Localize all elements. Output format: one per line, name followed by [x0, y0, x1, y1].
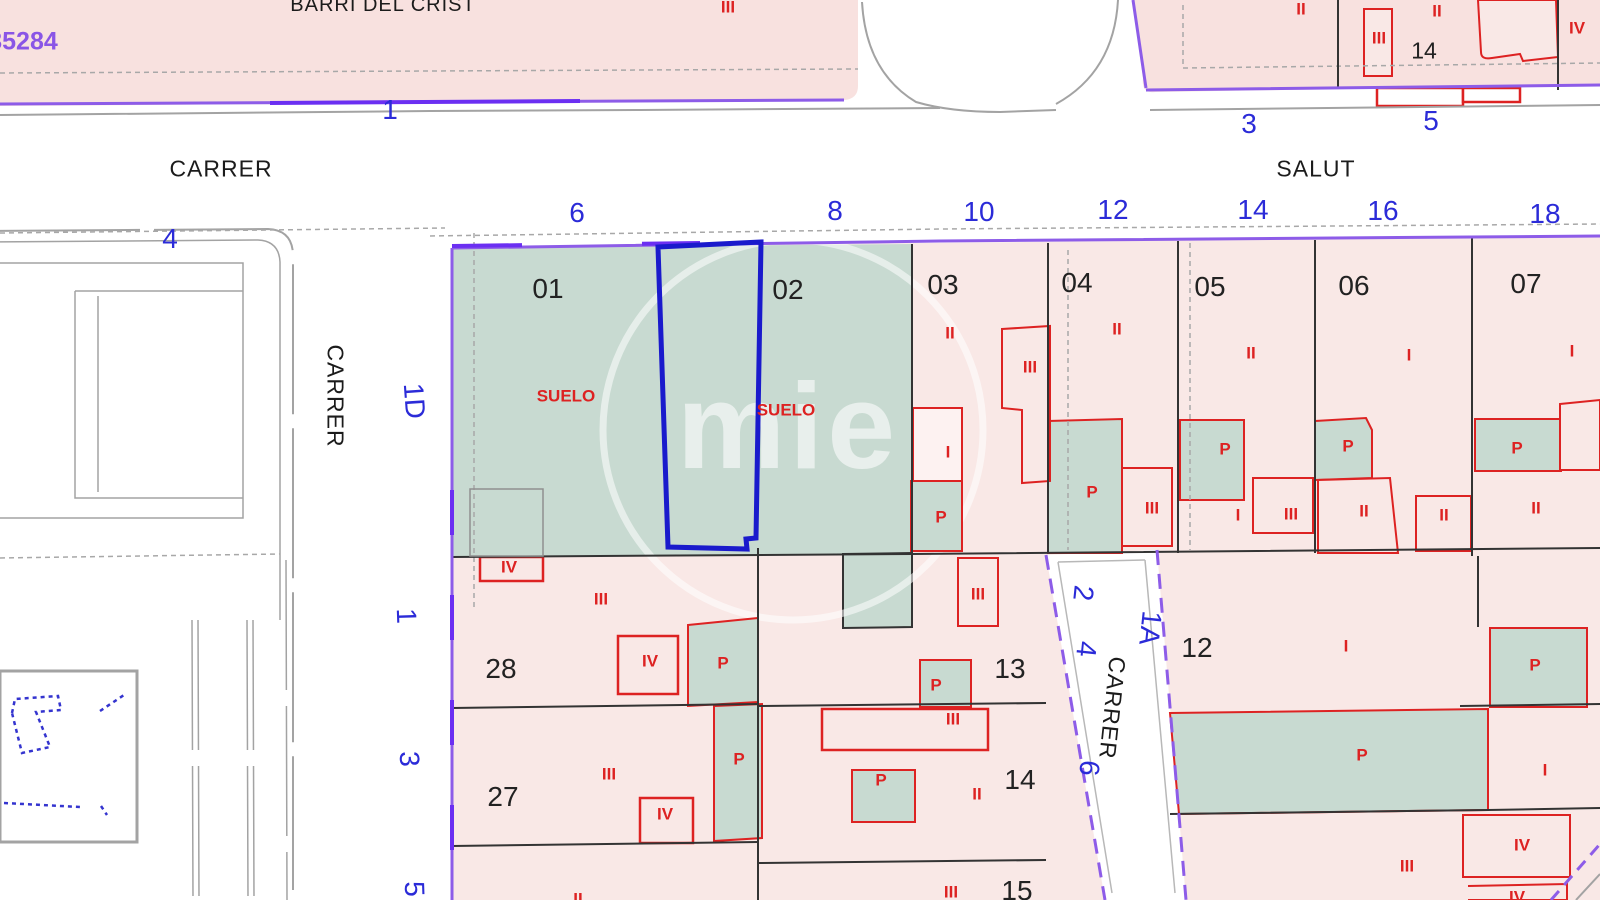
- floors-label: II: [945, 325, 954, 342]
- building-salut-annex-2[interactable]: [1463, 88, 1520, 102]
- building-salut-annex-1[interactable]: [1377, 88, 1463, 106]
- floors-label: III: [944, 884, 958, 900]
- patio-label: P: [1356, 747, 1367, 764]
- house-number: 8: [827, 197, 843, 225]
- suelo-label: SUELO: [757, 402, 816, 419]
- floors-label: II: [1246, 345, 1255, 362]
- floors-label: I: [1407, 347, 1412, 364]
- floors-label: I: [1543, 762, 1548, 779]
- floors-label: IV: [1514, 837, 1530, 854]
- floors-label: I: [1570, 343, 1575, 360]
- house-number: 10: [963, 198, 994, 226]
- house-number: 1: [392, 608, 421, 625]
- house-number: 1A: [1134, 610, 1165, 647]
- patio-label: P: [935, 509, 946, 526]
- parcel-number-07: 07: [1510, 270, 1541, 298]
- house-number: 4: [162, 225, 178, 253]
- floors-label: III: [1023, 359, 1037, 376]
- building-north-shape[interactable]: [1478, 0, 1558, 61]
- house-number: 6: [569, 199, 585, 227]
- patio-strip-wide[interactable]: [1170, 709, 1488, 814]
- floors-label: III: [721, 0, 735, 16]
- patio-label: P: [875, 772, 886, 789]
- street-name-carrer-top: CARRER: [169, 158, 272, 181]
- house-number: 2: [1068, 584, 1097, 602]
- parcel-number-14-north: 14: [1411, 40, 1437, 63]
- floors-label: III: [1400, 858, 1414, 875]
- patio-p13[interactable]: [920, 660, 971, 707]
- parcel-number-01: 01: [532, 275, 563, 303]
- parcel-number-14: 14: [1004, 766, 1035, 794]
- patio-label: P: [930, 677, 941, 694]
- patio-label: P: [1511, 440, 1522, 457]
- street-name-salut: SALUT: [1276, 158, 1355, 181]
- house-number: 18: [1529, 200, 1560, 228]
- house-number: 4: [1071, 640, 1100, 658]
- house-number: 5: [400, 881, 429, 898]
- floors-label: II: [1439, 507, 1448, 524]
- parcel-number-28: 28: [485, 655, 516, 683]
- cadastral-map-viewport[interactable]: mie: [0, 0, 1600, 900]
- patio-label: P: [1086, 484, 1097, 501]
- house-number: 1: [382, 96, 398, 124]
- parcel-number-06: 06: [1338, 272, 1369, 300]
- patio-label: P: [1219, 441, 1230, 458]
- patio-p04[interactable]: [1048, 419, 1122, 553]
- floors-label: IV: [657, 806, 673, 823]
- floors-label: I: [1236, 507, 1241, 524]
- floors-label: III: [594, 591, 608, 608]
- parcel-number-04: 04: [1061, 269, 1092, 297]
- floors-label: III: [1284, 506, 1298, 523]
- patio-label: P: [1529, 657, 1540, 674]
- building-p07-east[interactable]: [1560, 400, 1600, 470]
- parcel-number-15: 15: [1001, 877, 1032, 900]
- house-number: 3: [395, 751, 424, 768]
- patio-p27[interactable]: [714, 704, 762, 841]
- suelo-label: SUELO: [537, 388, 596, 405]
- floors-label: I: [1344, 638, 1349, 655]
- cadastral-map-canvas[interactable]: mie: [0, 0, 1600, 900]
- patio-label: P: [733, 751, 744, 768]
- parcel-number-02: 02: [772, 276, 803, 304]
- building-p06-II[interactable]: [1318, 478, 1398, 553]
- street-name-barri-del-crist: BARRI DEL CRIST: [290, 0, 475, 15]
- watermark-text: mie: [677, 358, 899, 494]
- floors-label: III: [946, 711, 960, 728]
- house-number: 6: [1074, 759, 1103, 777]
- parcel-number-12: 12: [1181, 634, 1212, 662]
- house-number: 12: [1097, 196, 1128, 224]
- floors-label: IV: [642, 653, 658, 670]
- house-number: 1D: [399, 382, 429, 420]
- house-number: 3: [1241, 110, 1257, 138]
- house-number: 16: [1367, 197, 1398, 225]
- parcel-02-suelo-extension[interactable]: [843, 553, 912, 628]
- floors-label: III: [602, 766, 616, 783]
- floors-label: II: [1531, 500, 1540, 517]
- house-number: 5: [1423, 107, 1439, 135]
- parcel-number-27: 27: [487, 783, 518, 811]
- floors-label: IV: [1569, 20, 1585, 37]
- floors-label: I: [946, 444, 951, 461]
- house-number: 14: [1237, 196, 1268, 224]
- floors-label: III: [1372, 30, 1386, 47]
- sub-buildings-light: [913, 408, 962, 481]
- patio-label: P: [717, 655, 728, 672]
- floors-label: III: [971, 586, 985, 603]
- building-p03-I[interactable]: [913, 408, 962, 481]
- building-outline-sw: [0, 671, 137, 842]
- parcel-number-13: 13: [994, 655, 1025, 683]
- floors-label: II: [1296, 1, 1305, 18]
- floors-label: II: [1112, 321, 1121, 338]
- floors-label: II: [573, 891, 582, 900]
- street-name-carrer-left: CARRER: [324, 344, 347, 447]
- parcel-number-05: 05: [1194, 273, 1225, 301]
- floors-label: IV: [501, 559, 517, 576]
- floors-label: IV: [1509, 889, 1525, 900]
- floors-label: II: [1359, 503, 1368, 520]
- floors-label: III: [1145, 500, 1159, 517]
- floors-label: II: [1432, 3, 1441, 20]
- patio-label: P: [1342, 438, 1353, 455]
- parcel-number-03: 03: [927, 271, 958, 299]
- floors-label: II: [972, 786, 981, 803]
- sheet-reference: 35284: [0, 30, 58, 55]
